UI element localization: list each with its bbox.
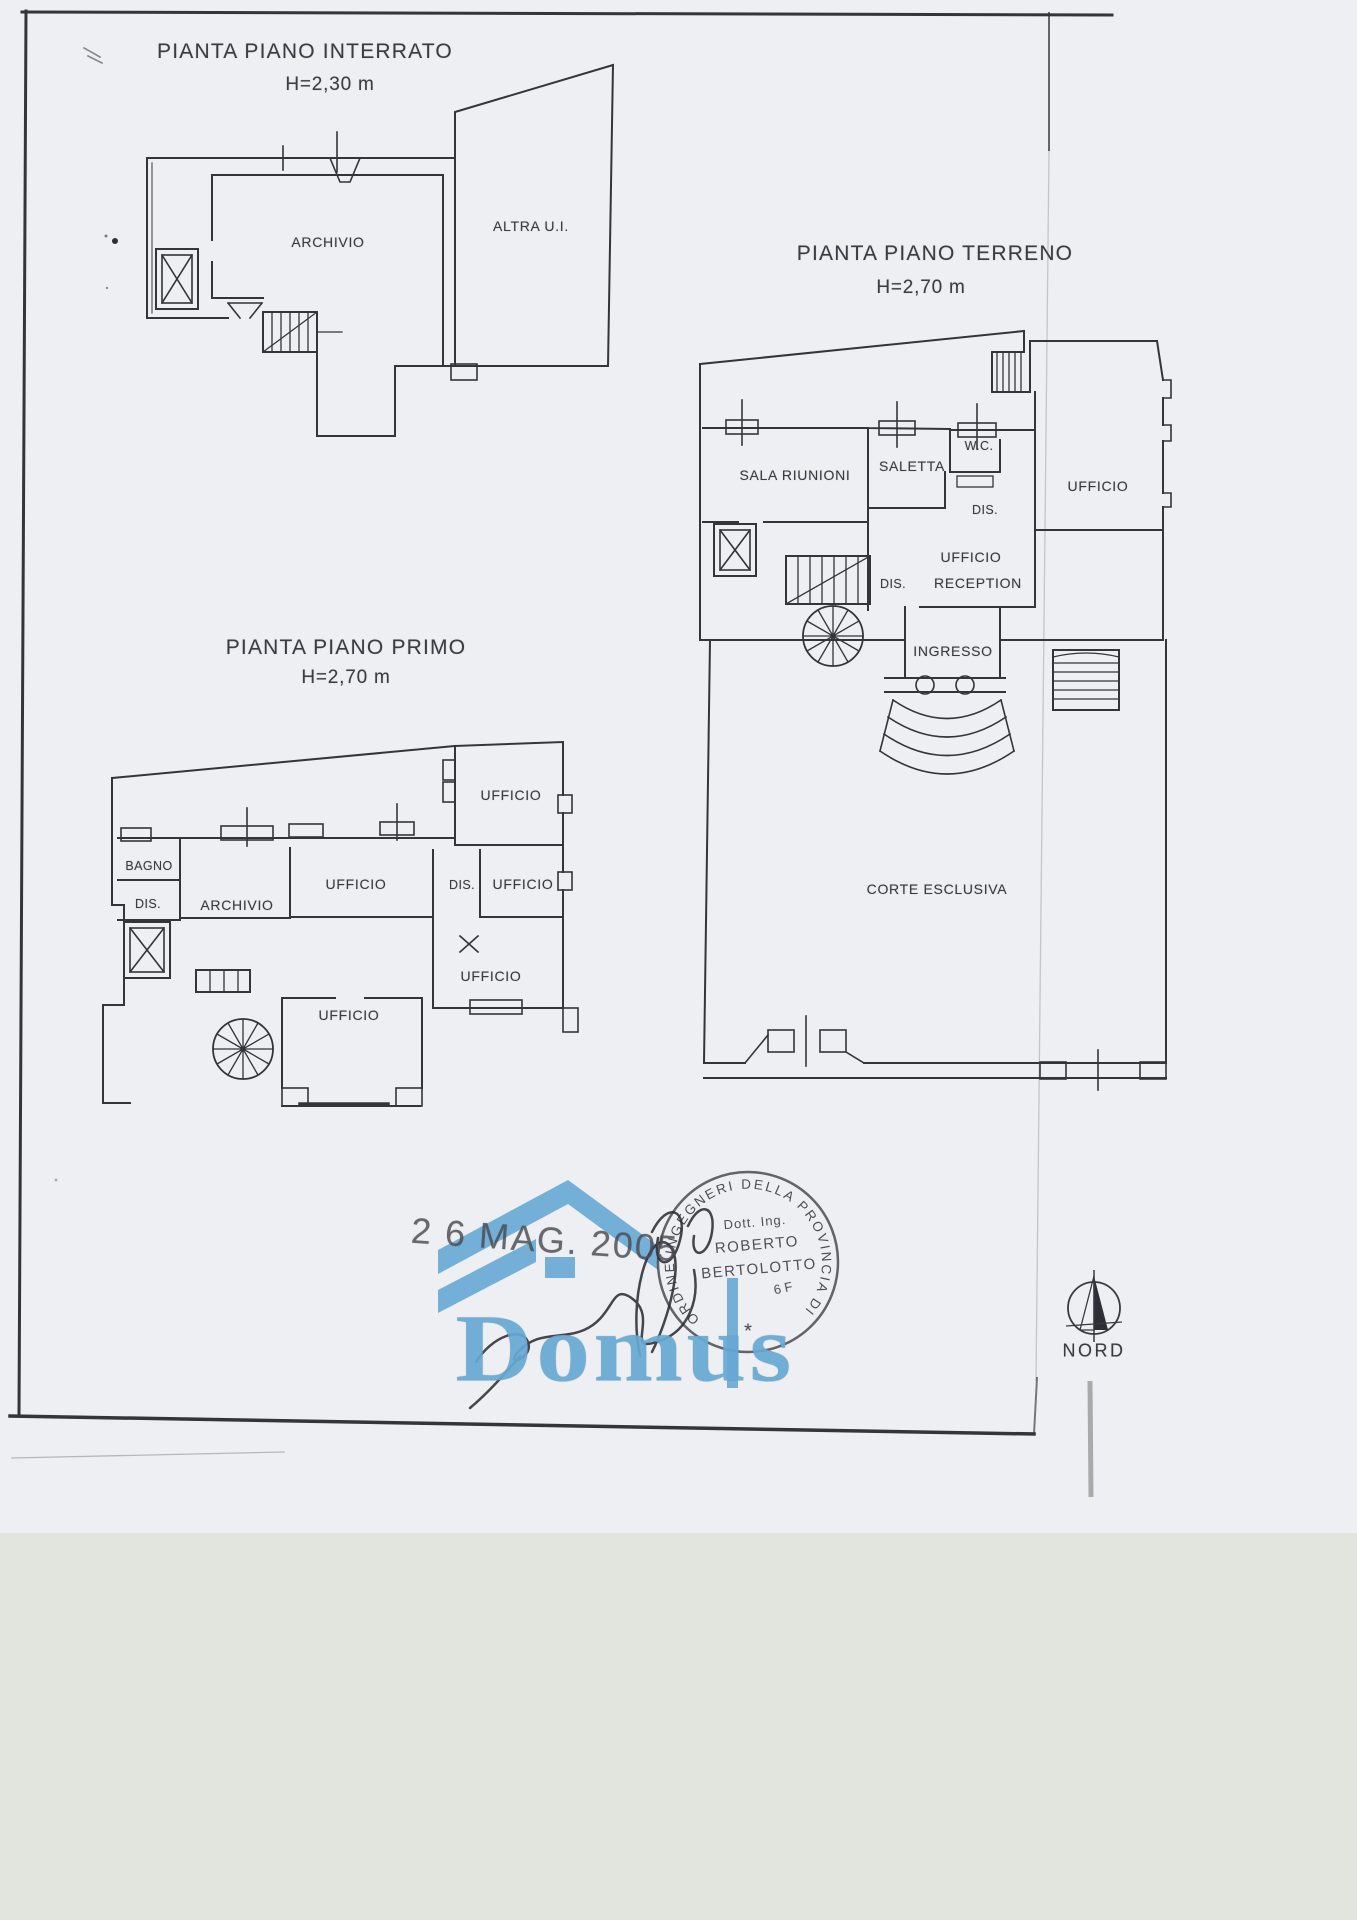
room-label-dis-left: DIS.	[135, 897, 161, 911]
stamp-center-text: Dott. Ing. ROBERTO BERTOLOTTO	[697, 1210, 818, 1283]
spiral-stair-icon	[213, 1019, 273, 1079]
basement-plan-height: H=2,30 m	[285, 74, 374, 96]
window-symbols	[726, 400, 996, 449]
ground-plan-title: PIANTA PIANO TERRENO	[797, 242, 1073, 266]
north-compass-icon	[1066, 1270, 1122, 1342]
elevator-icon	[714, 524, 756, 576]
scan-specks	[55, 48, 118, 1181]
room-label-wc: W.C.	[965, 439, 994, 453]
room-label-ufficio-right: UFFICIO	[1068, 478, 1129, 494]
room-label-ingresso: INGRESSO	[913, 643, 993, 659]
room-label-ufficio-reception-1: UFFICIO	[941, 549, 1002, 565]
floorplan-drawing: ORDINE INGEGNERI DELLA PROVINCIA DI TORI…	[0, 0, 1357, 1920]
ground-plan-height: H=2,70 m	[876, 277, 965, 299]
room-label-ufficio-right-first: UFFICIO	[493, 876, 554, 892]
room-label-sala-riunioni: SALA RIUNIONI	[739, 467, 850, 483]
room-label-archivio-first: ARCHIVIO	[200, 897, 273, 913]
elevator-icon	[156, 249, 198, 309]
room-label-ufficio-top: UFFICIO	[481, 787, 542, 803]
basement-plan-drawing	[147, 65, 613, 436]
door-cross	[460, 936, 478, 952]
room-label-ufficio-mid-right: UFFICIO	[461, 968, 522, 984]
first-plan-height: H=2,70 m	[301, 667, 390, 689]
room-label-saletta: SALETTA	[879, 458, 945, 474]
stamp-engineer-first-name: ROBERTO	[698, 1231, 815, 1258]
room-label-corte-esclusiva: CORTE ESCLUSIVA	[867, 881, 1008, 897]
right-stairs-icon	[1053, 650, 1119, 710]
entry-steps-icon	[880, 700, 1014, 774]
room-label-dis-lower: DIS.	[880, 577, 906, 591]
landing-stairs-icon	[196, 970, 250, 992]
wc-fixture	[957, 476, 993, 487]
room-label-bagno: BAGNO	[125, 859, 172, 873]
room-label-ufficio-center: UFFICIO	[326, 876, 387, 892]
window-symbols	[121, 804, 414, 846]
basement-stairs-icon	[263, 312, 342, 352]
room-label-archivio: ARCHIVIO	[291, 234, 364, 250]
engineer-stamp: ORDINE INGEGNERI DELLA PROVINCIA DI TORI…	[0, 0, 838, 1352]
stamp-star: *	[744, 1321, 752, 1344]
room-label-dis-mid: DIS.	[449, 878, 475, 892]
room-label-ufficio-bottom: UFFICIO	[319, 1007, 380, 1023]
basement-plan-title: PIANTA PIANO INTERRATO	[157, 40, 453, 64]
spiral-stair-icon	[803, 606, 863, 666]
room-label-altra-ui: ALTRA U.I.	[493, 218, 569, 234]
door-symbol	[330, 158, 360, 182]
window-symbol	[443, 760, 455, 802]
elevator-icon	[124, 922, 170, 978]
room-label-dis-upper: DIS.	[972, 503, 998, 517]
first-plan-title: PIANTA PIANO PRIMO	[226, 636, 467, 660]
compass-label: NORD	[1063, 1341, 1126, 1362]
scanned-floorplan-page: ORDINE INGEGNERI DELLA PROVINCIA DI TORI…	[0, 0, 1357, 1920]
ground-floor-plan-drawing	[700, 331, 1171, 1090]
straight-stairs-icon	[786, 556, 870, 604]
domus-watermark-text: Domus	[455, 1293, 794, 1404]
room-label-ufficio-reception-2: RECEPTION	[934, 575, 1022, 591]
